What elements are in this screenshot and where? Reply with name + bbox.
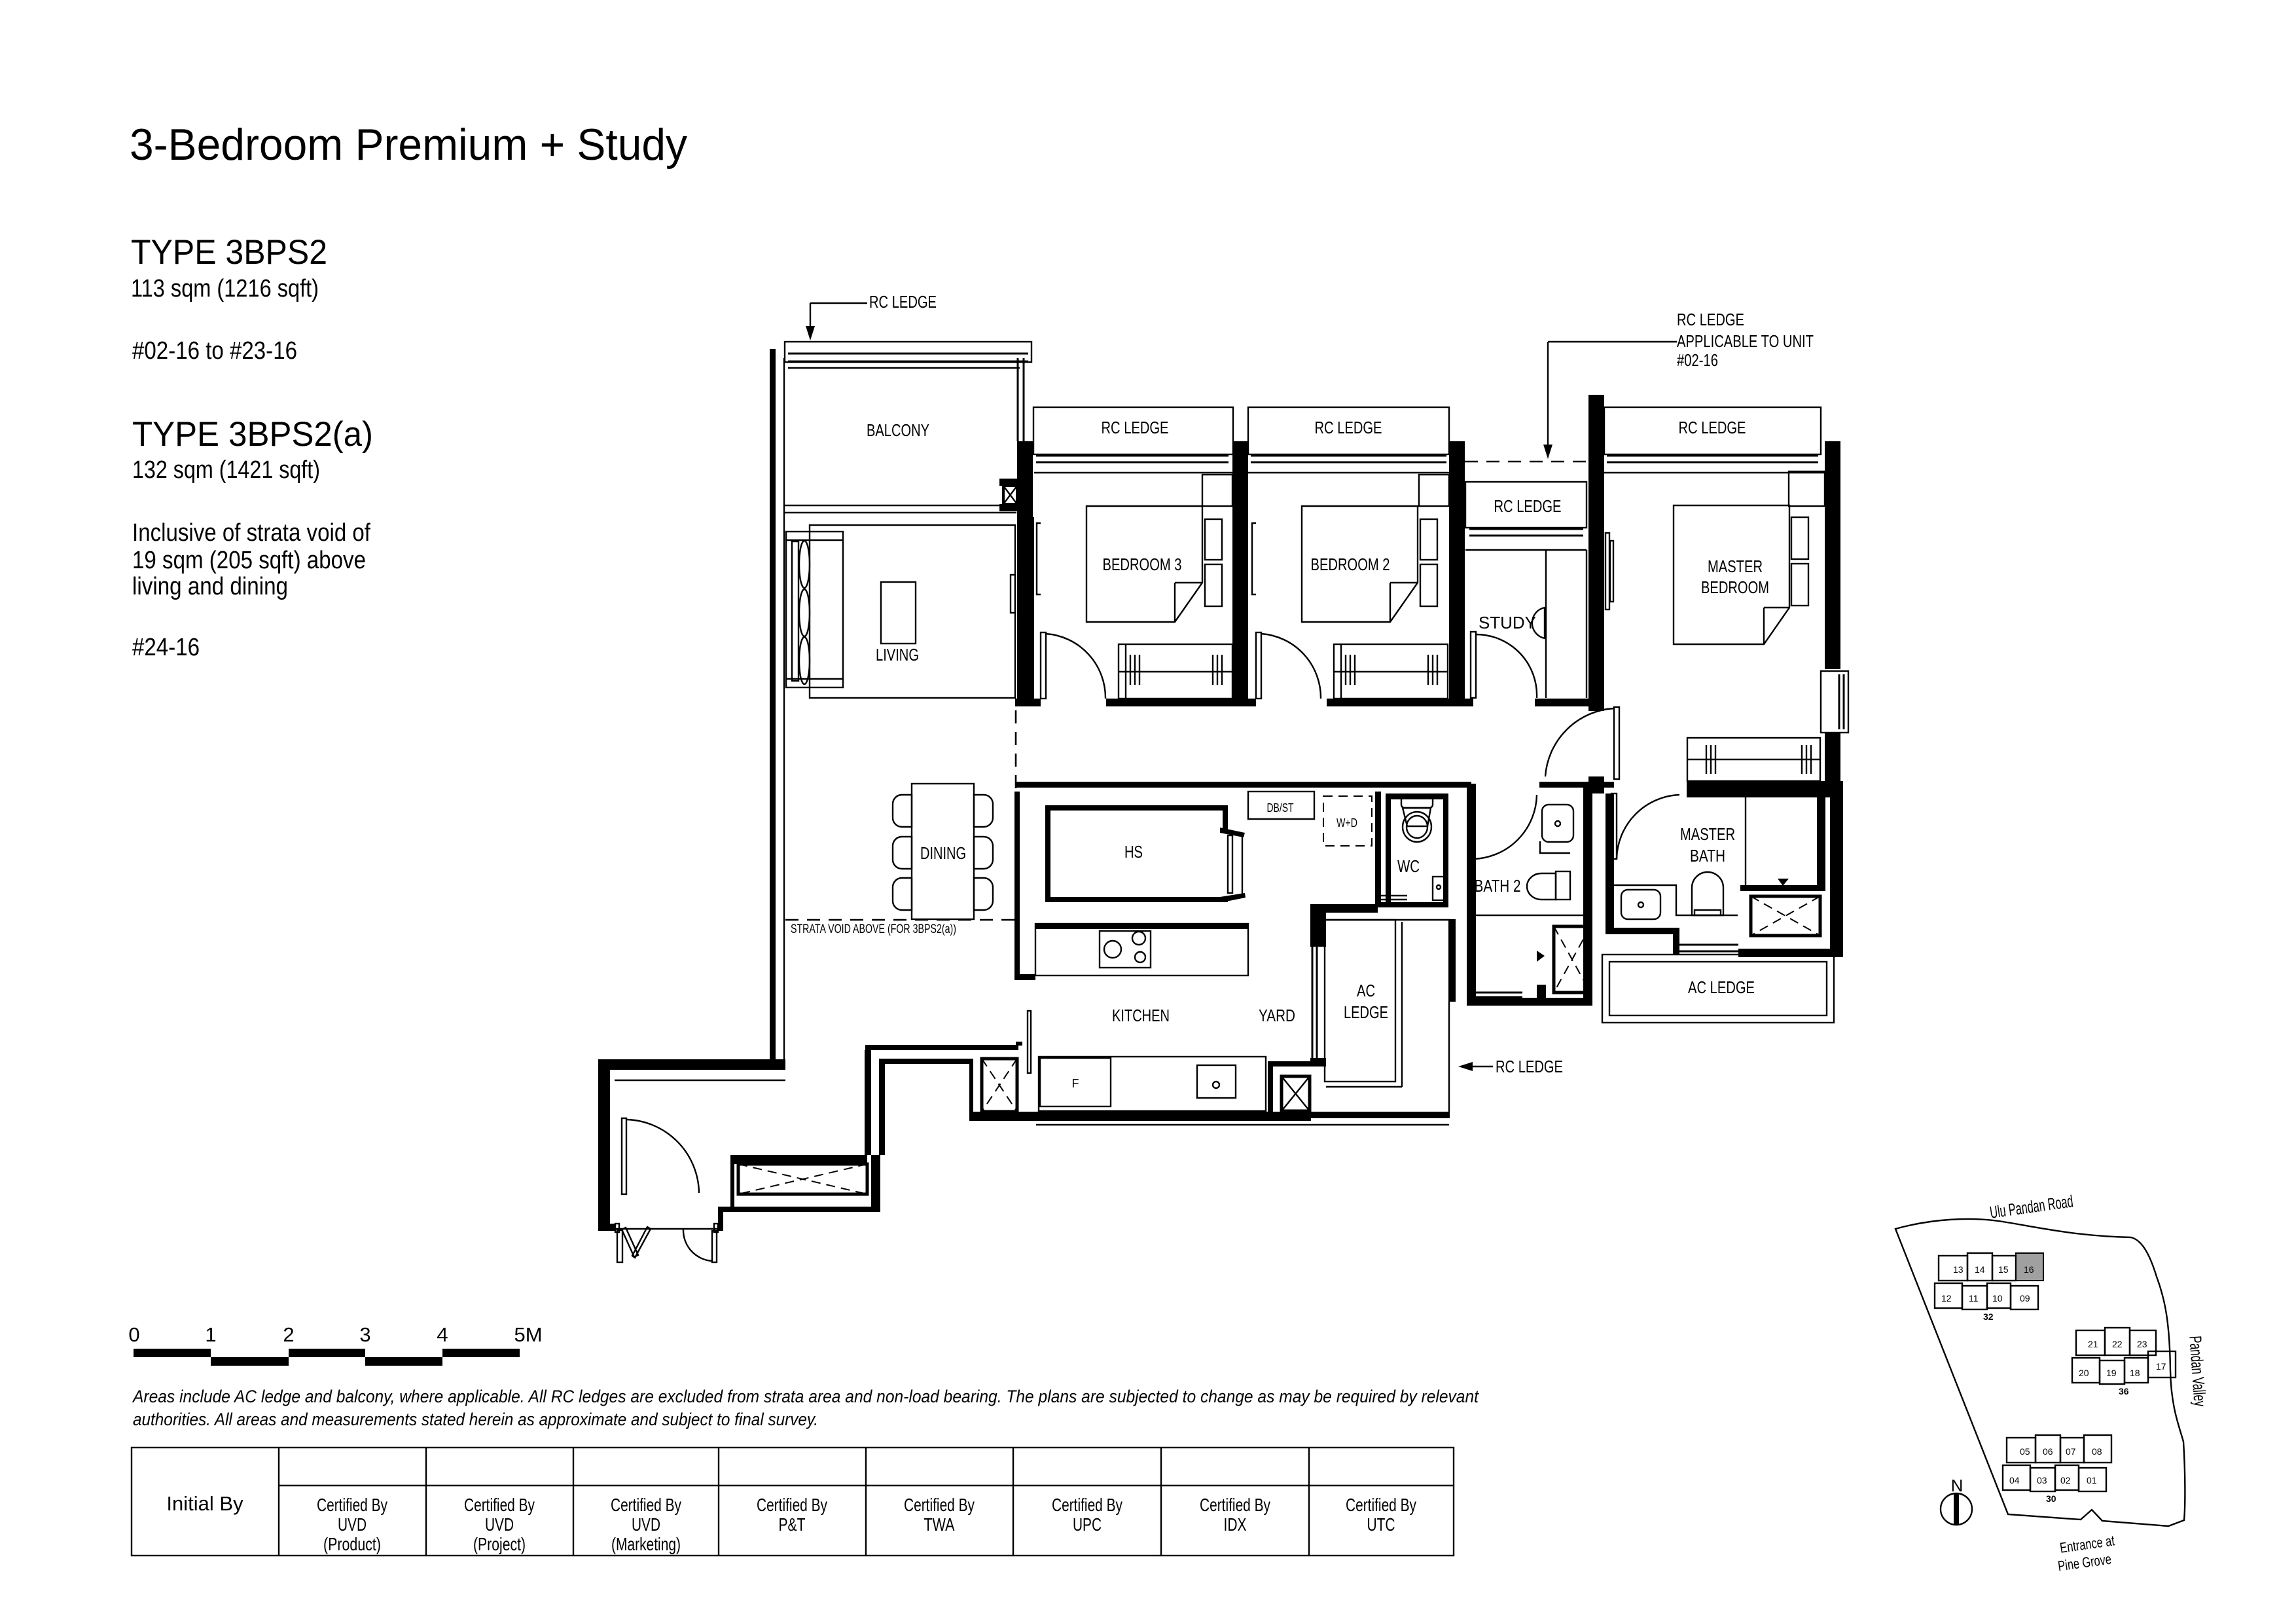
svg-text:22: 22 <box>2112 1339 2123 1349</box>
svg-text:1: 1 <box>205 1323 216 1346</box>
svg-text:authorities. All areas and mea: authorities. All areas and measurements … <box>133 1410 818 1429</box>
svg-text:Certified By: Certified By <box>904 1495 975 1515</box>
svg-text:BATH 2: BATH 2 <box>1475 876 1521 896</box>
svg-text:01: 01 <box>2087 1475 2097 1486</box>
svg-text:3-Bedroom Premium + Study: 3-Bedroom Premium + Study <box>130 120 687 170</box>
svg-text:Initial By: Initial By <box>166 1492 243 1515</box>
svg-text:UTC: UTC <box>1367 1514 1395 1535</box>
svg-text:RC LEDGE: RC LEDGE <box>1494 496 1562 516</box>
svg-text:Certified By: Certified By <box>1200 1495 1270 1515</box>
svg-text:UPC: UPC <box>1073 1514 1102 1535</box>
svg-text:#02-16 to #23-16: #02-16 to #23-16 <box>132 337 297 365</box>
svg-text:TYPE 3BPS2: TYPE 3BPS2 <box>131 233 327 272</box>
svg-text:(Project): (Project) <box>473 1534 526 1554</box>
svg-text:Inclusive of strata void of: Inclusive of strata void of <box>132 519 370 547</box>
svg-text:KITCHEN: KITCHEN <box>1112 1006 1170 1025</box>
svg-text:03: 03 <box>2037 1475 2047 1486</box>
svg-text:Certified By: Certified By <box>1052 1495 1122 1515</box>
svg-text:MASTER: MASTER <box>1708 556 1763 576</box>
svg-text:Areas include AC ledge and bal: Areas include AC ledge and balcony, wher… <box>132 1387 1479 1406</box>
svg-text:(Product): (Product) <box>323 1534 381 1554</box>
svg-text:10: 10 <box>1992 1293 2003 1304</box>
svg-text:UVD: UVD <box>632 1514 660 1535</box>
svg-text:0: 0 <box>128 1323 139 1346</box>
svg-text:04: 04 <box>2009 1475 2020 1486</box>
svg-text:RC LEDGE: RC LEDGE <box>1315 418 1382 437</box>
svg-text:13: 13 <box>1953 1264 1964 1275</box>
svg-text:21: 21 <box>2088 1339 2098 1349</box>
svg-text:HS: HS <box>1124 842 1143 862</box>
svg-text:N: N <box>1951 1476 1964 1495</box>
svg-text:living and dining: living and dining <box>132 573 288 600</box>
svg-text:TWA: TWA <box>924 1514 955 1535</box>
svg-text:113 sqm (1216 sqft): 113 sqm (1216 sqft) <box>131 275 319 302</box>
svg-text:11: 11 <box>1969 1293 1979 1304</box>
svg-text:RC LEDGE: RC LEDGE <box>1496 1057 1563 1076</box>
svg-text:20: 20 <box>2079 1368 2089 1378</box>
svg-text:UVD: UVD <box>485 1514 514 1535</box>
svg-text:RC LEDGE: RC LEDGE <box>869 292 937 312</box>
svg-text:Certified By: Certified By <box>317 1495 387 1515</box>
svg-text:STRATA VOID ABOVE (FOR 3BPS2(a: STRATA VOID ABOVE (FOR 3BPS2(a)) <box>791 922 956 936</box>
svg-text:DINING: DINING <box>920 843 966 863</box>
svg-text:Certified By: Certified By <box>1346 1495 1416 1515</box>
svg-text:07: 07 <box>2066 1446 2076 1457</box>
svg-text:Certified By: Certified By <box>611 1495 681 1515</box>
svg-text:08: 08 <box>2092 1446 2102 1457</box>
svg-text:(Marketing): (Marketing) <box>611 1534 681 1554</box>
svg-text:132 sqm (1421 sqft): 132 sqm (1421 sqft) <box>132 456 320 484</box>
svg-text:06: 06 <box>2043 1446 2053 1457</box>
svg-text:18: 18 <box>2130 1368 2140 1378</box>
svg-text:16: 16 <box>2024 1264 2034 1275</box>
svg-text:DB/ST: DB/ST <box>1267 801 1294 814</box>
svg-text:P&T: P&T <box>779 1514 806 1535</box>
svg-text:17: 17 <box>2156 1361 2166 1372</box>
svg-text:30: 30 <box>2046 1493 2056 1504</box>
svg-text:LIVING: LIVING <box>876 645 919 665</box>
svg-text:AC LEDGE: AC LEDGE <box>1688 977 1755 997</box>
svg-text:15: 15 <box>1998 1264 2009 1275</box>
svg-text:LEDGE: LEDGE <box>1344 1002 1388 1022</box>
svg-text:BALCONY: BALCONY <box>867 420 929 440</box>
svg-text:RC LEDGE: RC LEDGE <box>1679 418 1746 437</box>
svg-text:23: 23 <box>2137 1339 2147 1349</box>
svg-text:STUDY: STUDY <box>1479 613 1536 632</box>
svg-text:Certified By: Certified By <box>757 1495 827 1515</box>
svg-text:APPLICABLE TO UNIT: APPLICABLE TO UNIT <box>1677 331 1814 351</box>
svg-text:32: 32 <box>1983 1311 1994 1322</box>
svg-text:RC LEDGE: RC LEDGE <box>1677 310 1744 329</box>
svg-text:3: 3 <box>359 1323 370 1346</box>
svg-text:W+D: W+D <box>1336 816 1357 830</box>
svg-text:2: 2 <box>283 1323 294 1346</box>
svg-text:05: 05 <box>2020 1446 2030 1457</box>
svg-text:14: 14 <box>1975 1264 1985 1275</box>
svg-text:RC LEDGE: RC LEDGE <box>1102 418 1169 437</box>
svg-text:09: 09 <box>2020 1293 2030 1304</box>
svg-text:UVD: UVD <box>338 1514 367 1535</box>
svg-text:MASTER: MASTER <box>1680 824 1735 844</box>
svg-text:IDX: IDX <box>1224 1514 1247 1535</box>
svg-text:AC: AC <box>1357 981 1375 1000</box>
svg-text:BATH: BATH <box>1690 846 1725 866</box>
svg-text:12: 12 <box>1941 1293 1952 1304</box>
svg-text:YARD: YARD <box>1259 1006 1295 1025</box>
svg-text:36: 36 <box>2119 1386 2129 1396</box>
svg-text:19 sqm (205 sqft) above: 19 sqm (205 sqft) above <box>132 547 366 574</box>
svg-text:F: F <box>1072 1077 1079 1090</box>
svg-text:#24-16: #24-16 <box>132 634 200 661</box>
svg-text:19: 19 <box>2106 1368 2117 1378</box>
svg-text:BEDROOM 2: BEDROOM 2 <box>1311 555 1390 574</box>
svg-text:4: 4 <box>437 1323 448 1346</box>
svg-text:02: 02 <box>2060 1475 2071 1486</box>
svg-text:WC: WC <box>1397 856 1420 876</box>
svg-text:5M: 5M <box>514 1323 542 1346</box>
svg-text:BEDROOM: BEDROOM <box>1701 577 1769 597</box>
svg-text:#02-16: #02-16 <box>1677 350 1718 370</box>
svg-text:TYPE 3BPS2(a): TYPE 3BPS2(a) <box>132 415 373 454</box>
svg-text:Certified By: Certified By <box>464 1495 535 1515</box>
svg-text:BEDROOM 3: BEDROOM 3 <box>1103 555 1182 574</box>
